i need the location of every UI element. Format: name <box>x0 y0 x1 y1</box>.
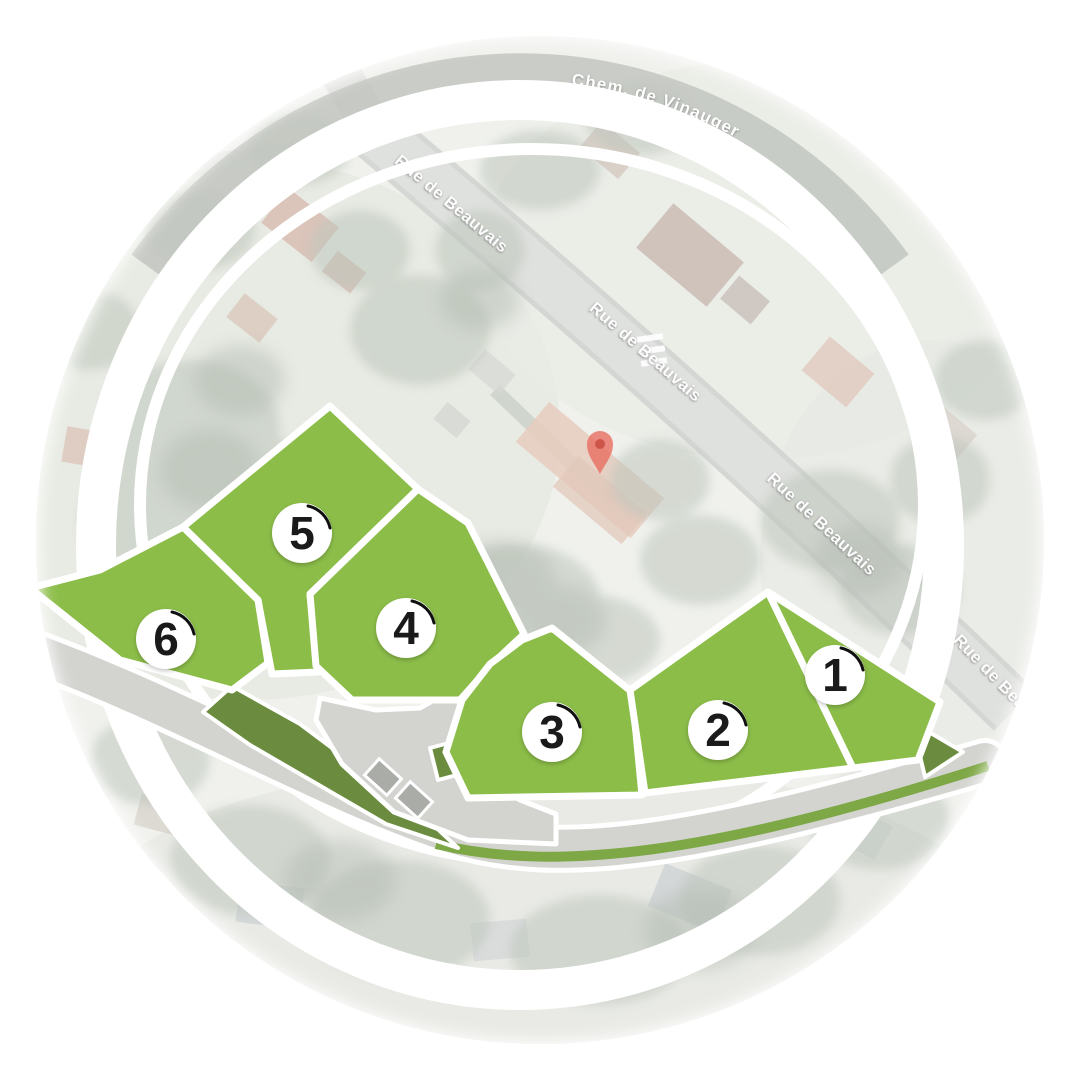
svg-text:2: 2 <box>705 704 731 756</box>
plot-badge-6[interactable]: 6 <box>136 609 196 669</box>
plot-badge-5[interactable]: 5 <box>272 503 332 563</box>
svg-text:3: 3 <box>539 706 565 758</box>
plot-badge-4[interactable]: 4 <box>376 598 436 658</box>
plot-badge-3[interactable]: 3 <box>522 702 582 762</box>
lot-map-svg: Chem. de Vinauger Rue de Beauvais Rue de… <box>0 0 1080 1080</box>
svg-text:6: 6 <box>153 613 179 665</box>
svg-text:5: 5 <box>289 507 315 559</box>
plot-badge-2[interactable]: 2 <box>688 700 748 760</box>
lot-map-canvas: Chem. de Vinauger Rue de Beauvais Rue de… <box>0 0 1080 1080</box>
svg-text:1: 1 <box>822 649 848 701</box>
svg-text:4: 4 <box>393 602 419 654</box>
plot-badge-1[interactable]: 1 <box>805 645 865 705</box>
